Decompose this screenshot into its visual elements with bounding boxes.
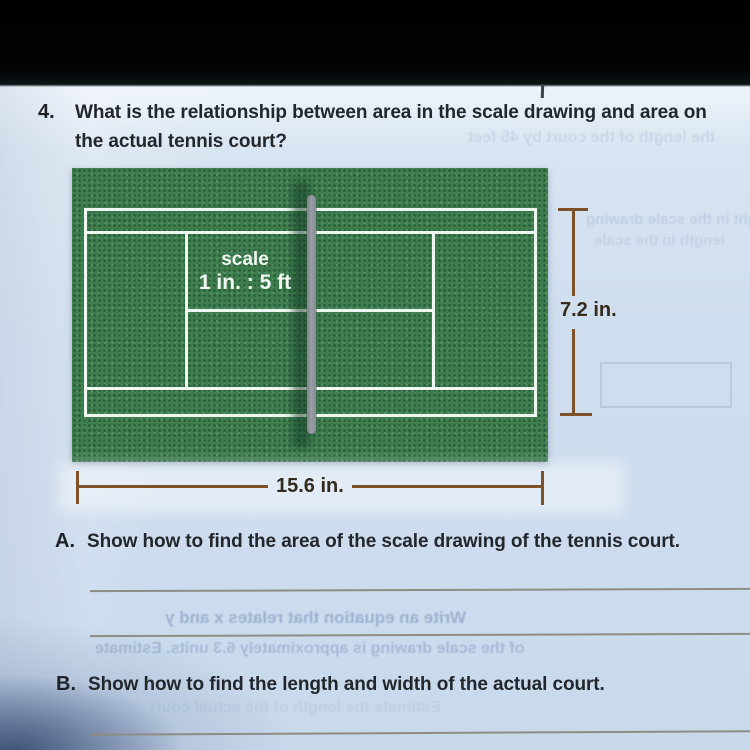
height-dimension-cap-bottom xyxy=(560,413,592,416)
bleedthrough-text: Estimate the length of the actual court xyxy=(150,699,441,717)
height-dimension-line-upper xyxy=(572,208,575,296)
question-number: 4. xyxy=(38,101,55,124)
worksheet-page: 4. What is the relationship between area… xyxy=(0,0,750,750)
part-b-label: B. xyxy=(56,673,76,696)
bleedthrough-text: at right in the scale drawing xyxy=(586,211,750,228)
scale-label-word: scale xyxy=(175,249,315,271)
height-dimension-line-lower xyxy=(572,329,575,415)
part-a-text: Show how to find the area of the scale d… xyxy=(87,531,680,553)
part-b-text: Show how to find the length and width of… xyxy=(88,674,605,696)
bleedthrough-text: Write an equation that relates x and y xyxy=(165,608,466,628)
width-dimension-line-right xyxy=(352,485,542,488)
width-dimension-label: 15.6 in. xyxy=(276,475,344,498)
top-black-band xyxy=(0,0,750,87)
court-sideline-right xyxy=(534,208,537,417)
answer-line-2 xyxy=(90,633,750,637)
bleedthrough-text: length in the scale xyxy=(594,232,725,249)
tennis-court-diagram: scale 1 in. : 5 ft xyxy=(72,168,548,462)
court-sideline-left xyxy=(84,208,87,417)
answer-line-1 xyxy=(90,588,750,592)
scale-label-ratio: 1 in. : 5 ft xyxy=(175,271,315,294)
question-text-line1: What is the relationship between area in… xyxy=(75,102,735,124)
bleedthrough-text: of the scale drawing is approximately 6.… xyxy=(95,640,524,658)
net xyxy=(307,195,316,434)
height-dimension-label: 7.2 in. xyxy=(560,299,617,322)
page-edge-mark xyxy=(541,84,544,98)
answer-line-3 xyxy=(90,730,750,735)
bleedthrough-box xyxy=(600,362,732,408)
bleedthrough-text: the length of the court by 45 feet xyxy=(468,129,715,147)
width-dimension-tick-right xyxy=(541,471,544,505)
part-a-label: A. xyxy=(55,530,75,553)
scale-label: scale 1 in. : 5 ft xyxy=(175,249,315,294)
width-dimension-line-left xyxy=(76,485,268,488)
